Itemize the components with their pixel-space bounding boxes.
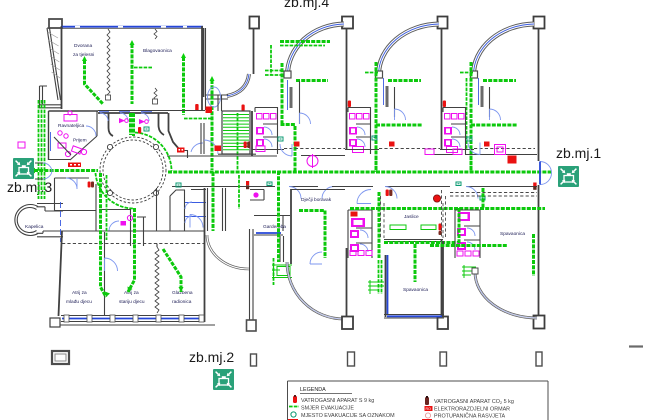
- svg-text:Kapelica: Kapelica: [25, 224, 44, 230]
- svg-text:stariju djecu: stariju djecu: [119, 299, 145, 305]
- svg-text:Atrij za: Atrij za: [124, 290, 139, 296]
- svg-text:Blagovaonica: Blagovaonica: [143, 48, 172, 54]
- svg-text:mlađu djecu: mlađu djecu: [66, 299, 92, 305]
- svg-text:RO: RO: [426, 407, 432, 411]
- svg-text:Spavaonica: Spavaonica: [500, 231, 525, 237]
- svg-text:Dvorana: Dvorana: [74, 43, 92, 49]
- svg-text:zb.mj.4: zb.mj.4: [284, 0, 329, 10]
- svg-text:SMJER EVAKUACIJE: SMJER EVAKUACIJE: [301, 406, 354, 412]
- svg-text:Jaslice: Jaslice: [404, 214, 419, 220]
- svg-text:Garderoba: Garderoba: [263, 224, 286, 230]
- svg-text:PROTUPANIČNA RASVJETA: PROTUPANIČNA RASVJETA: [434, 413, 505, 420]
- svg-text:zb.mj.2: zb.mj.2: [189, 349, 234, 365]
- svg-text:VATROGASNI APARAT CO2 5 kg: VATROGASNI APARAT CO2 5 kg: [434, 399, 514, 405]
- svg-text:ELEKTRORAZDJELNI ORMAR: ELEKTRORAZDJELNI ORMAR: [434, 407, 510, 413]
- svg-text:Atrij za: Atrij za: [72, 290, 87, 296]
- svg-text:Spavaonica: Spavaonica: [403, 287, 428, 293]
- svg-text:Prijem: Prijem: [73, 138, 87, 144]
- svg-text:Ravnateljica: Ravnateljica: [58, 123, 84, 129]
- svg-text:LEGENDA: LEGENDA: [300, 387, 326, 393]
- svg-text:zb.mj.1: zb.mj.1: [556, 145, 601, 161]
- svg-text:za tjelesni: za tjelesni: [73, 52, 94, 58]
- svg-text:VATROGASNI APARAT S 9 kg: VATROGASNI APARAT S 9 kg: [301, 398, 374, 404]
- svg-text:Dječji boravak: Dječji boravak: [301, 197, 332, 203]
- svg-text:radionica: radionica: [172, 299, 192, 305]
- svg-text:zb.mj.3: zb.mj.3: [7, 179, 52, 195]
- svg-text:MJESTO EVAKUACIJE SA OZNAKOM: MJESTO EVAKUACIJE SA OZNAKOM: [301, 413, 395, 419]
